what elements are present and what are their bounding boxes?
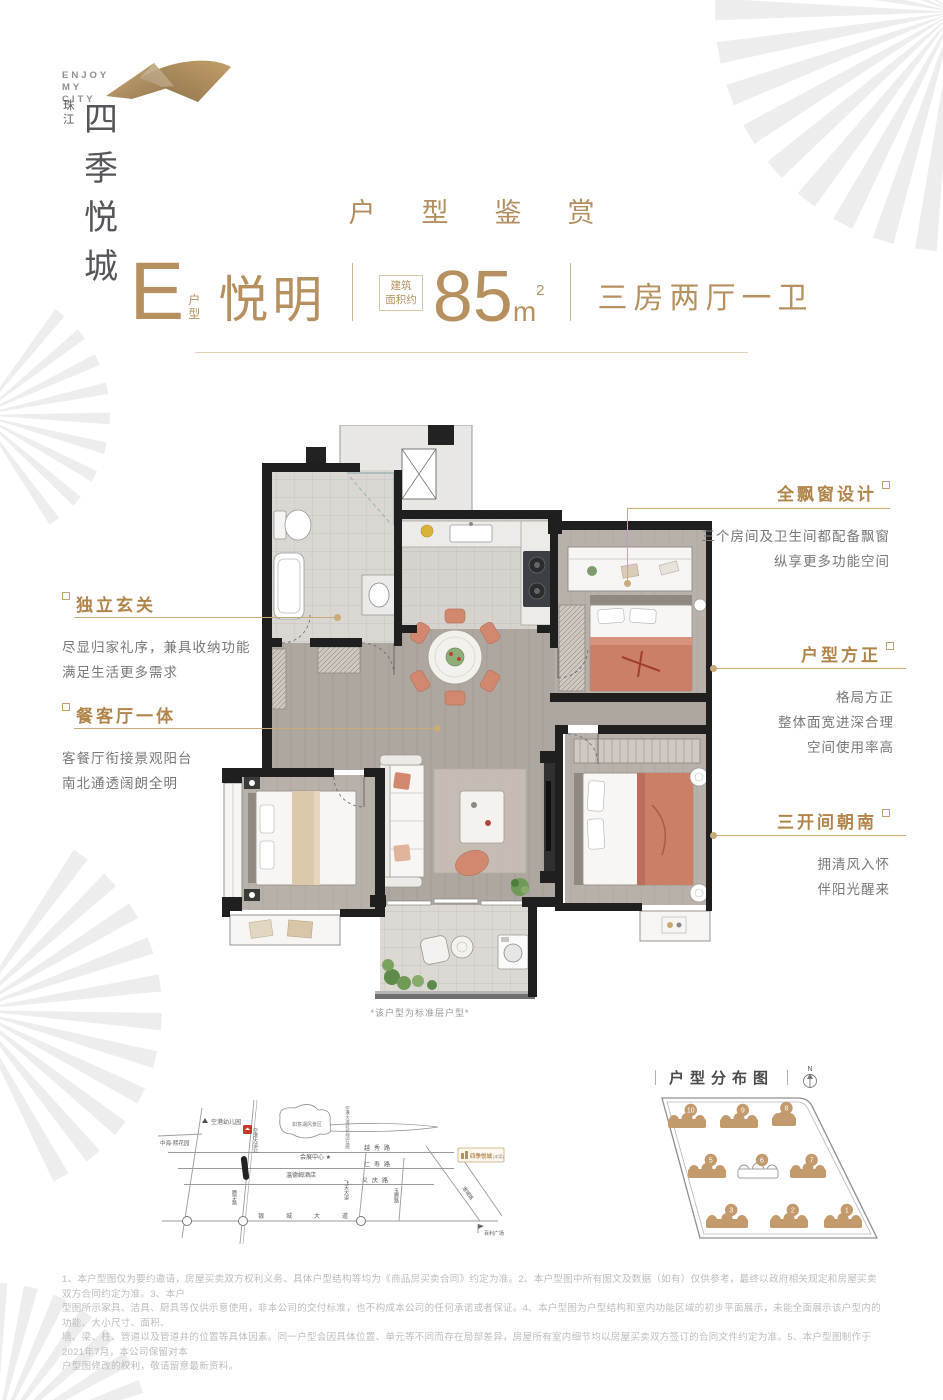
- side-table: [690, 768, 708, 786]
- kitchen-sink: [450, 525, 492, 542]
- building-6: 6: [738, 1154, 778, 1178]
- unit-spec-row: E 户型 悦明 建筑 面积约 85m2 三房两厅一卫: [0, 258, 943, 325]
- leader-dot-foyer: [334, 614, 341, 621]
- map-label: 玉腾路: [393, 1188, 399, 1204]
- map-label: 义庆路: [362, 1177, 392, 1185]
- distribution-header: 户型分布图 N: [655, 1063, 819, 1091]
- map-label: 空港大道延长线(在建): [345, 1105, 351, 1150]
- coffee-table: [460, 791, 504, 843]
- bedroom-west: [224, 775, 382, 945]
- building-3: 3: [706, 1204, 748, 1228]
- disclaimer-text: 1、本户型图仅为要约邀请，房屋买卖双方权利义务、具体户型结构等均为《商品房买卖合…: [62, 1273, 882, 1375]
- callout-line: 空间使用率高: [778, 735, 894, 760]
- svg-text:2: 2: [791, 1208, 795, 1215]
- callout-line: 满足生活更多需求: [62, 660, 251, 685]
- callout-line: 客餐厅衔接景观阳台: [62, 746, 193, 771]
- map-label: 会展中心 ★: [300, 1153, 331, 1161]
- floorplan-note: *该户型为标准层户型*: [320, 1006, 520, 1019]
- leader-dot-square: [710, 665, 717, 672]
- disclaimer-line: 墙、梁、柱、管道以及管道井的位置等具体因素。同一户型会因具体位置、单元等不同而存…: [62, 1331, 882, 1360]
- callout-square-layout: 户型方正 格局方正 整体面宽进深合理 空间使用率高: [778, 641, 894, 760]
- svg-text:9: 9: [741, 1108, 745, 1115]
- building-7: 7: [790, 1154, 826, 1178]
- disclaimer-line: 1、本户型图仅为要约邀请，房屋买卖双方权利义务、具体户型结构等均为《商品房买卖合…: [62, 1273, 882, 1302]
- callout-line: 格局方正: [778, 685, 894, 710]
- callout-title: 三开间朝南: [777, 808, 877, 833]
- leader-dot-south: [710, 832, 717, 839]
- divider: [655, 1070, 656, 1085]
- callout-title: 户型方正: [801, 641, 881, 666]
- map-label: 空港大道北: [252, 1127, 258, 1154]
- svg-text:7: 7: [810, 1158, 814, 1165]
- svg-text:10: 10: [687, 1108, 695, 1115]
- square-badge-icon: [882, 809, 890, 817]
- area-value: 85m2: [433, 269, 545, 325]
- unit-type-label: 户型: [188, 293, 204, 321]
- building-9: 9: [720, 1104, 758, 1128]
- callout-title: 餐客厅一体: [76, 702, 176, 727]
- svg-text:3: 3: [729, 1208, 733, 1215]
- callout-line: 伴阳光醒来: [777, 877, 890, 902]
- leader-dot-dining: [434, 725, 441, 732]
- area-prefix-line1: 建筑: [385, 279, 417, 293]
- map-label: 空港幼儿园: [211, 1118, 241, 1126]
- building-2: 2: [770, 1204, 808, 1228]
- map-label: 百利广场: [484, 1230, 504, 1237]
- area-exponent: 2: [536, 282, 544, 299]
- area-prefix-line2: 面积约: [385, 293, 417, 307]
- callout-full-bay-window: 全飘窗设计 三个房间及卫生间都配备飘窗 纵享更多功能空间: [702, 480, 891, 574]
- divider: [352, 263, 353, 321]
- project-location-badge: 四季悦城 (本案): [458, 1148, 504, 1162]
- building-10: 10: [668, 1104, 706, 1128]
- balcony-chair: [451, 936, 473, 958]
- square-badge-icon: [62, 592, 70, 600]
- bed: [590, 595, 692, 691]
- square-badge-icon: [62, 703, 70, 711]
- compass-icon: N: [801, 1063, 819, 1091]
- area-prefix-label: 建筑 面积约: [379, 275, 423, 311]
- location-map: 四季悦城 (本案) 空港幼儿园 中海·熙花园 如意湖风景区 会展中心 ★ 温德姆…: [158, 1098, 520, 1246]
- project-label: 四季悦城: [470, 1152, 493, 1160]
- bedroom-north: [555, 528, 710, 700]
- map-label: 腾宇路: [231, 1189, 237, 1206]
- bed: [248, 791, 356, 885]
- callout-line: 整体面宽进深合理: [778, 710, 894, 735]
- brand-name-vertical: 珠江: [63, 99, 78, 127]
- compass-n-label: N: [807, 1066, 812, 1073]
- spec-hairline: [195, 352, 748, 353]
- distribution-diagram: 1098567321: [648, 1092, 893, 1250]
- map-label: 飞天大道: [343, 1180, 349, 1201]
- map-label: 银城大道: [258, 1212, 370, 1220]
- map-label: 港城路: [460, 1185, 474, 1201]
- bed: [574, 773, 693, 885]
- callout-line: 南北通透阔朗全明: [62, 771, 193, 796]
- disclaimer-line: 型图所示家具、洁具、厨具等仅供示意使用，非本公司的交付标准，也不构成本公司的任何…: [62, 1302, 882, 1331]
- svg-text:8: 8: [784, 1106, 788, 1113]
- building-1: 1: [824, 1204, 862, 1228]
- brand-tagline-line1: ENJOY: [62, 70, 109, 82]
- bay-window: [640, 911, 710, 941]
- map-label: 仁寿路: [364, 1161, 394, 1169]
- disclaimer-line: 户型图修改的权利，敬请留意最新资料。: [62, 1360, 882, 1375]
- callout-three-bays-south: 三开间朝南 拥清风入怀 伴阳光醒来: [777, 808, 890, 902]
- svg-text:6: 6: [760, 1158, 764, 1165]
- page-title: 户型鉴赏: [0, 191, 943, 230]
- callout-line: 纵享更多功能空间: [702, 549, 891, 574]
- callout-title: 全飘窗设计: [777, 480, 877, 505]
- callout-title: 独立玄关: [76, 591, 156, 616]
- area-unit: m: [513, 296, 536, 327]
- building-8: 8: [772, 1102, 796, 1126]
- unit-rooms-label: 三房两厅一卫: [597, 273, 813, 317]
- callout-dining-living: 餐客厅一体 客餐厅衔接景观阳台 南北通透阔朗全明: [62, 702, 193, 796]
- callout-foyer: 独立玄关 尽显归家礼序，兼具收纳功能 满足生活更多需求: [62, 591, 251, 685]
- distribution-title: 户型分布图: [669, 1067, 774, 1088]
- location-marker-icon: [243, 1125, 252, 1134]
- callout-line: 三个房间及卫生间都配备飘窗: [702, 524, 891, 549]
- balcony: [375, 899, 535, 999]
- map-label: 如意湖风景区: [292, 1121, 322, 1128]
- building-5: 5: [688, 1154, 726, 1178]
- area-number: 85: [433, 257, 513, 337]
- unit-type-letter: E: [130, 258, 185, 325]
- map-label: 越秀路: [364, 1144, 394, 1152]
- map-label: 温德姆酒店: [286, 1171, 316, 1179]
- square-badge-icon: [886, 642, 894, 650]
- washing-machine: [498, 935, 528, 969]
- map-label: 中海·熙花园: [160, 1139, 190, 1147]
- callout-line: 尽显归家礼序，兼具收纳功能: [62, 635, 251, 660]
- square-badge-icon: [882, 481, 890, 489]
- svg-text:5: 5: [709, 1158, 713, 1165]
- callout-line: 拥清风入怀: [777, 852, 890, 877]
- sofa: [380, 755, 424, 887]
- unit-name: 悦明: [218, 278, 326, 323]
- wardrobe: [574, 739, 700, 763]
- floor-plan: [222, 425, 712, 1005]
- kitchen: [397, 517, 555, 629]
- side-table: [690, 884, 708, 902]
- divider: [787, 1070, 788, 1085]
- corridor: [555, 702, 708, 725]
- poster-page: ENJOY MY CITY 珠江 四季悦城 户型鉴赏 E 户型 悦明 建筑 面积…: [0, 0, 943, 1400]
- project-tag: (本案): [493, 1153, 504, 1159]
- leader-line-bay-vertical: [627, 508, 628, 584]
- bay-window: [230, 915, 340, 945]
- leader-dot-bay: [624, 580, 631, 587]
- balcony-chair: [420, 935, 451, 966]
- divider: [570, 263, 571, 321]
- svg-text:1: 1: [845, 1208, 849, 1215]
- toilet: [274, 511, 286, 539]
